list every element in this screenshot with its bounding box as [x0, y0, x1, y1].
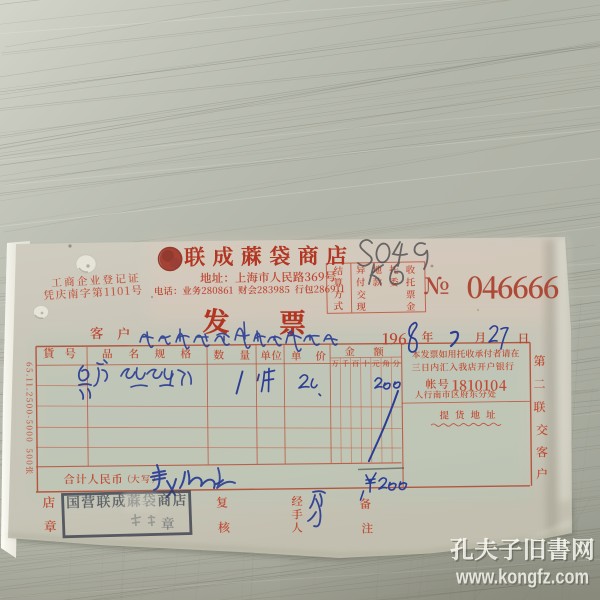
svg-text:www.kongfz.com: www.kongfz.com [455, 567, 589, 589]
